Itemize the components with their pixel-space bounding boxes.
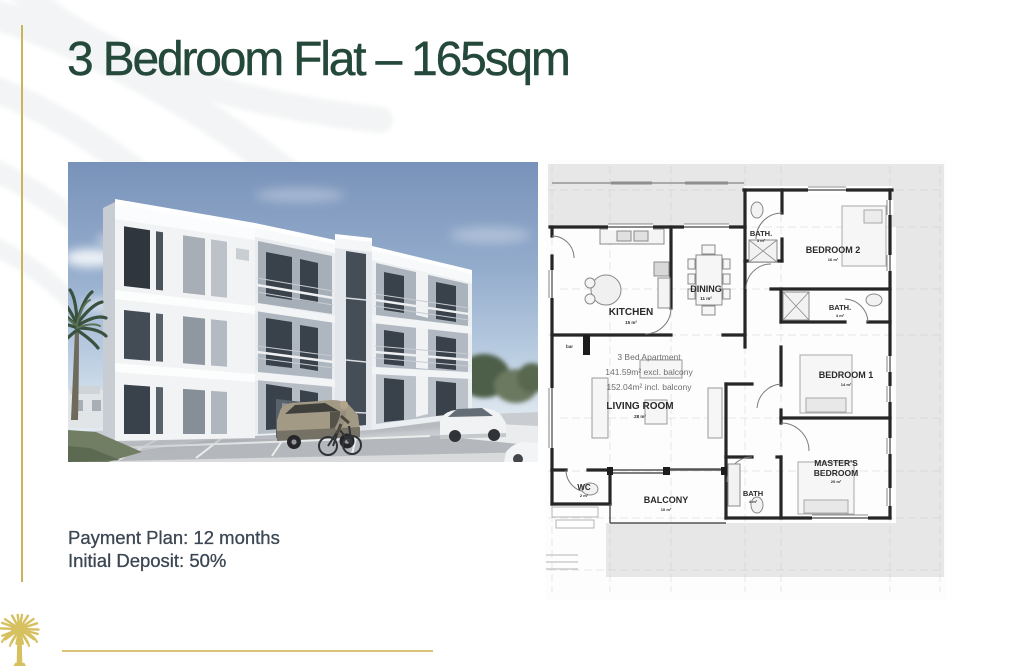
svg-text:BATH.: BATH.	[829, 303, 851, 312]
svg-text:141.59m² excl. balcony: 141.59m² excl. balcony	[605, 367, 693, 377]
svg-text:BATH.: BATH.	[750, 229, 772, 238]
svg-text:KITCHEN: KITCHEN	[609, 307, 653, 318]
svg-text:DINING: DINING	[690, 284, 722, 294]
svg-text:BALCONY: BALCONY	[644, 495, 689, 505]
svg-text:BEDROOM 1: BEDROOM 1	[819, 370, 874, 380]
svg-text:20 m²: 20 m²	[831, 479, 842, 484]
svg-text:15 m²: 15 m²	[625, 320, 637, 325]
svg-text:16 m²: 16 m²	[828, 257, 839, 262]
svg-text:BEDROOM: BEDROOM	[814, 468, 858, 478]
svg-text:28 m²: 28 m²	[634, 414, 646, 419]
svg-text:BATH: BATH	[743, 489, 763, 498]
svg-text:14 m²: 14 m²	[841, 382, 852, 387]
svg-text:LIVING ROOM: LIVING ROOM	[606, 401, 673, 412]
svg-text:11 m²: 11 m²	[700, 296, 712, 301]
svg-text:3 m²: 3 m²	[757, 238, 766, 243]
svg-text:3 Bed Apartment: 3 Bed Apartment	[617, 352, 681, 362]
svg-text:152.04m² incl. balcony: 152.04m² incl. balcony	[606, 382, 692, 392]
svg-text:bar: bar	[566, 344, 573, 349]
svg-text:2 m²: 2 m²	[580, 493, 589, 498]
svg-text:4 m²: 4 m²	[836, 313, 845, 318]
svg-text:MASTER'S: MASTER'S	[814, 458, 858, 468]
svg-text:WC: WC	[577, 483, 591, 492]
svg-text:BEDROOM 2: BEDROOM 2	[806, 245, 861, 255]
svg-text:10 m²: 10 m²	[661, 507, 672, 512]
svg-text:4 m²: 4 m²	[749, 499, 758, 504]
